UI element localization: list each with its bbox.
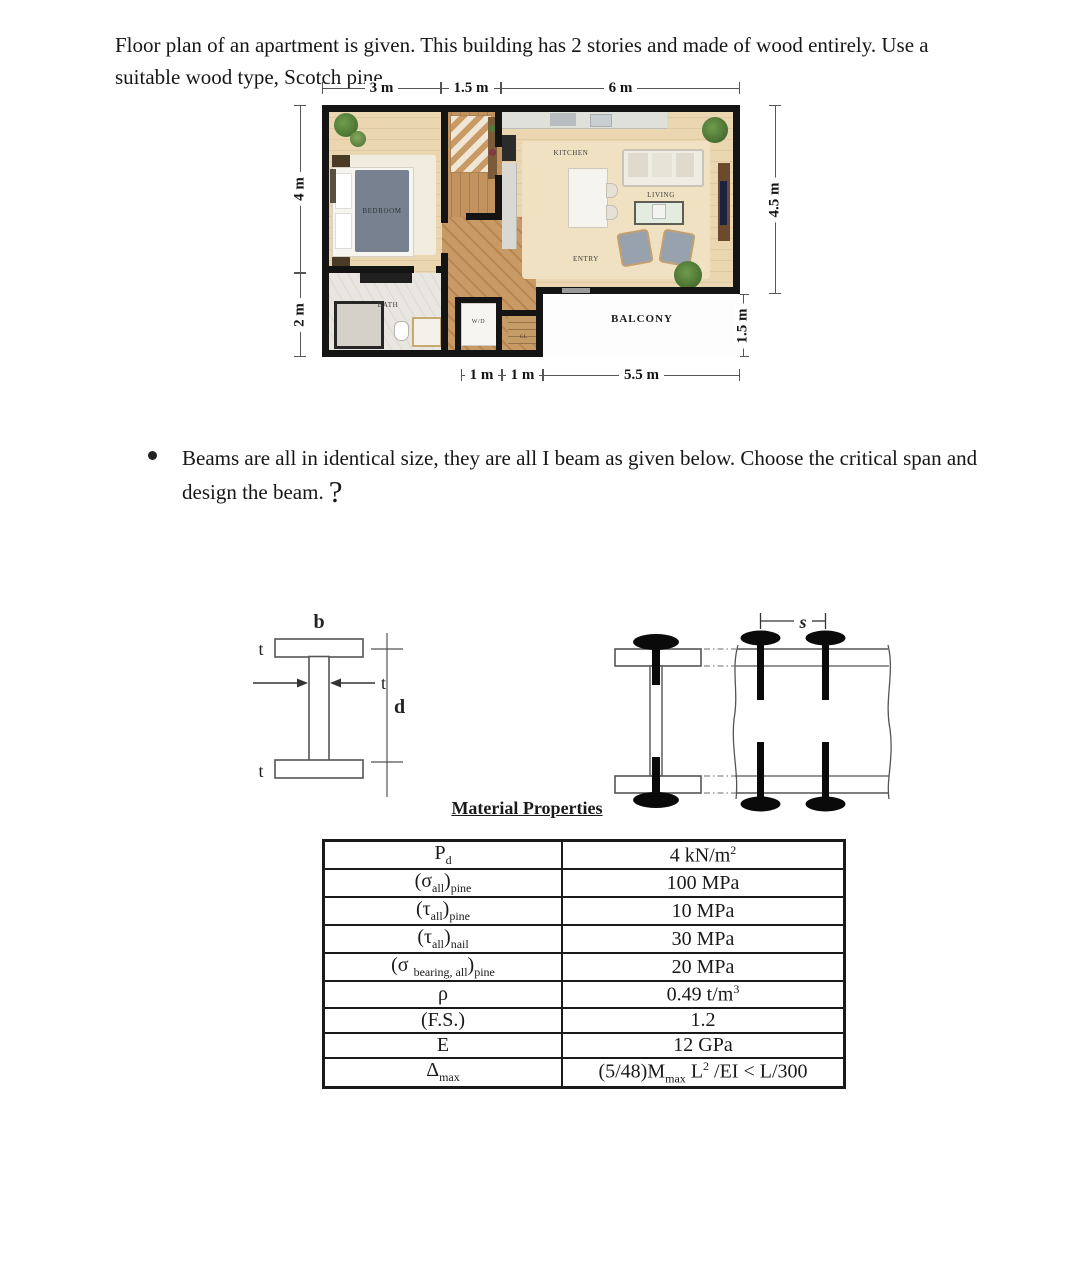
nail-head-icon bbox=[741, 797, 781, 812]
bath-label: BATH bbox=[370, 301, 406, 309]
kitchen-side-counter bbox=[502, 163, 517, 249]
bottom-flange bbox=[275, 760, 363, 778]
kitchen-sink bbox=[590, 114, 612, 127]
bullet-sentence: Beams are all in identical size, they ar… bbox=[182, 446, 977, 504]
flange-thickness-label: t bbox=[258, 639, 263, 659]
tv bbox=[720, 181, 727, 225]
dimension-label: 1.5 m bbox=[449, 81, 494, 95]
table-row: Pd4 kN/m2 bbox=[324, 841, 845, 870]
property-value-cell: 4 kN/m2 bbox=[562, 841, 845, 870]
flange-thickness-label: t bbox=[258, 761, 263, 781]
bedroom-label: BEDROOM bbox=[356, 207, 408, 215]
table-row: (F.S.)1.2 bbox=[324, 1008, 845, 1033]
nail-icon bbox=[822, 742, 829, 803]
dimension-label: 2 m bbox=[292, 298, 309, 332]
beam-cross-section-diagram: b t t t d bbox=[237, 597, 417, 809]
property-value-cell: 10 MPa bbox=[562, 897, 845, 925]
plant-icon bbox=[674, 261, 702, 289]
armchair bbox=[616, 228, 653, 267]
dimension-top-3m: 3 m bbox=[322, 81, 441, 95]
shelf-decor bbox=[489, 149, 496, 156]
pillow bbox=[335, 173, 352, 209]
dimension-label: 5.5 m bbox=[619, 368, 664, 382]
sofa-cushion bbox=[676, 153, 694, 177]
balcony-door bbox=[562, 288, 590, 293]
property-value-cell: 100 MPa bbox=[562, 869, 845, 897]
table-row: ρ0.49 t/m3 bbox=[324, 981, 845, 1008]
wall-segment bbox=[441, 105, 448, 223]
property-label-cell: E bbox=[324, 1033, 563, 1058]
property-value-cell: 20 MPa bbox=[562, 953, 845, 981]
plant-icon bbox=[702, 117, 728, 143]
property-value-cell: 30 MPa bbox=[562, 925, 845, 953]
bath-counter bbox=[360, 273, 412, 283]
sofa-cushion bbox=[652, 153, 672, 177]
table-row: Δmax(5/48)Mmax L2 /EI < L/300 bbox=[324, 1058, 845, 1088]
table-row: (τall)pine10 MPa bbox=[324, 897, 845, 925]
nail-spacing-label: s bbox=[798, 612, 806, 632]
nightstand bbox=[332, 155, 350, 167]
bathtub bbox=[412, 317, 442, 347]
wall-segment bbox=[466, 213, 502, 220]
property-value-cell: (5/48)Mmax L2 /EI < L/300 bbox=[562, 1058, 845, 1088]
dimension-label: 4 m bbox=[292, 172, 309, 206]
floor-plan: BEDROOM BATH KITCHEN LIVING ENTRY W/D CL… bbox=[322, 105, 740, 357]
beam-nailing-diagram: s bbox=[598, 597, 900, 812]
washer-dryer-label: W/D bbox=[461, 319, 496, 325]
material-properties-table: Pd4 kN/m2 (σall)pine100 MPa (τall)pine10… bbox=[322, 839, 846, 1089]
property-label-cell: (τall)nail bbox=[324, 925, 563, 953]
sofa-cushion bbox=[628, 153, 648, 177]
bullet-item: Beams are all in identical size, they ar… bbox=[148, 441, 984, 509]
floor-plan-figure: 3 m 1.5 m 6 m 4 m 2 m 4.5 m 1.5 m 1 m 1 … bbox=[280, 78, 810, 423]
table-row: E12 GPa bbox=[324, 1033, 845, 1058]
nail-head-icon bbox=[741, 631, 781, 646]
dimension-label: 6 m bbox=[604, 81, 638, 95]
table-row: (σ bearing, all)pine20 MPa bbox=[324, 953, 845, 981]
bullet-text: Beams are all in identical size, they ar… bbox=[182, 441, 982, 509]
wall-segment bbox=[322, 105, 329, 357]
property-value-cell: 12 GPa bbox=[562, 1033, 845, 1058]
kitchen-island bbox=[568, 168, 608, 228]
property-label-cell: ρ bbox=[324, 981, 563, 1008]
dimension-label: 1 m bbox=[506, 368, 540, 382]
kitchen-label: KITCHEN bbox=[548, 149, 594, 157]
plant-icon bbox=[350, 131, 366, 147]
flange-width-label: b bbox=[313, 611, 324, 633]
bullet-marker bbox=[148, 451, 157, 460]
dimension-left-4m: 4 m bbox=[293, 105, 307, 273]
balcony-area bbox=[543, 294, 740, 357]
dimension-label: 1.5 m bbox=[735, 303, 752, 348]
dimension-right-4-5m: 4.5 m bbox=[768, 105, 782, 294]
document-page: Floor plan of an apartment is given. Thi… bbox=[0, 0, 1080, 1272]
dimension-top-1-5m: 1.5 m bbox=[441, 81, 501, 95]
property-label-cell: (σ bearing, all)pine bbox=[324, 953, 563, 981]
depth-label: d bbox=[394, 696, 405, 718]
property-value-cell: 1.2 bbox=[562, 1008, 845, 1033]
property-label-cell: (F.S.) bbox=[324, 1008, 563, 1033]
nail-icon bbox=[757, 639, 764, 700]
material-properties-title: Material Properties bbox=[377, 798, 677, 819]
dimension-top-6m: 6 m bbox=[501, 81, 740, 95]
top-flange bbox=[275, 639, 363, 657]
wall-segment bbox=[455, 297, 502, 303]
dimension-bottom-5-5m: 5.5 m bbox=[543, 368, 740, 382]
wall-segment bbox=[496, 297, 502, 350]
arrowhead-icon bbox=[330, 679, 341, 688]
wall-segment bbox=[733, 105, 740, 294]
pillow bbox=[335, 213, 352, 249]
property-label-cell: Δmax bbox=[324, 1058, 563, 1088]
question-mark: ? bbox=[329, 474, 343, 509]
wall-segment bbox=[322, 350, 543, 357]
table-row: (σall)pine100 MPa bbox=[324, 869, 845, 897]
nail-icon bbox=[822, 639, 829, 700]
living-label: LIVING bbox=[640, 191, 682, 199]
property-value-cell: 0.49 t/m3 bbox=[562, 981, 845, 1008]
staircase bbox=[450, 115, 492, 173]
fridge bbox=[502, 135, 516, 161]
dimension-label: 3 m bbox=[365, 81, 399, 95]
arrowhead-icon bbox=[297, 679, 308, 688]
wall-segment bbox=[537, 310, 543, 350]
wall-segment bbox=[322, 266, 414, 273]
wall-segment bbox=[322, 105, 740, 112]
wall-art bbox=[330, 169, 336, 203]
entry-label: ENTRY bbox=[566, 255, 606, 263]
property-label-cell: (τall)pine bbox=[324, 897, 563, 925]
dimension-label: 1 m bbox=[465, 368, 499, 382]
wall-segment bbox=[436, 266, 448, 273]
toilet bbox=[394, 321, 409, 341]
table-row: (τall)nail30 MPa bbox=[324, 925, 845, 953]
wall-segment bbox=[495, 105, 502, 147]
dimension-bottom-1m-a: 1 m bbox=[461, 368, 502, 382]
property-label-cell: (σall)pine bbox=[324, 869, 563, 897]
dimension-left-2m: 2 m bbox=[293, 273, 307, 357]
nail-head-icon bbox=[633, 634, 679, 650]
stove bbox=[550, 113, 576, 126]
web bbox=[309, 657, 329, 761]
property-label-cell: Pd bbox=[324, 841, 563, 870]
table-decor bbox=[652, 204, 666, 219]
closet-label: CL bbox=[520, 335, 536, 340]
kitchen-counter bbox=[502, 112, 667, 129]
nail-head-icon bbox=[806, 631, 846, 646]
dimension-right-1-5m: 1.5 m bbox=[736, 294, 750, 357]
dimension-label: 4.5 m bbox=[767, 177, 784, 222]
dimension-bottom-1m-b: 1 m bbox=[502, 368, 543, 382]
web-thickness-label: t bbox=[381, 673, 386, 693]
nail-head-icon bbox=[806, 797, 846, 812]
nail-icon bbox=[757, 742, 764, 803]
balcony-label: BALCONY bbox=[572, 313, 712, 325]
